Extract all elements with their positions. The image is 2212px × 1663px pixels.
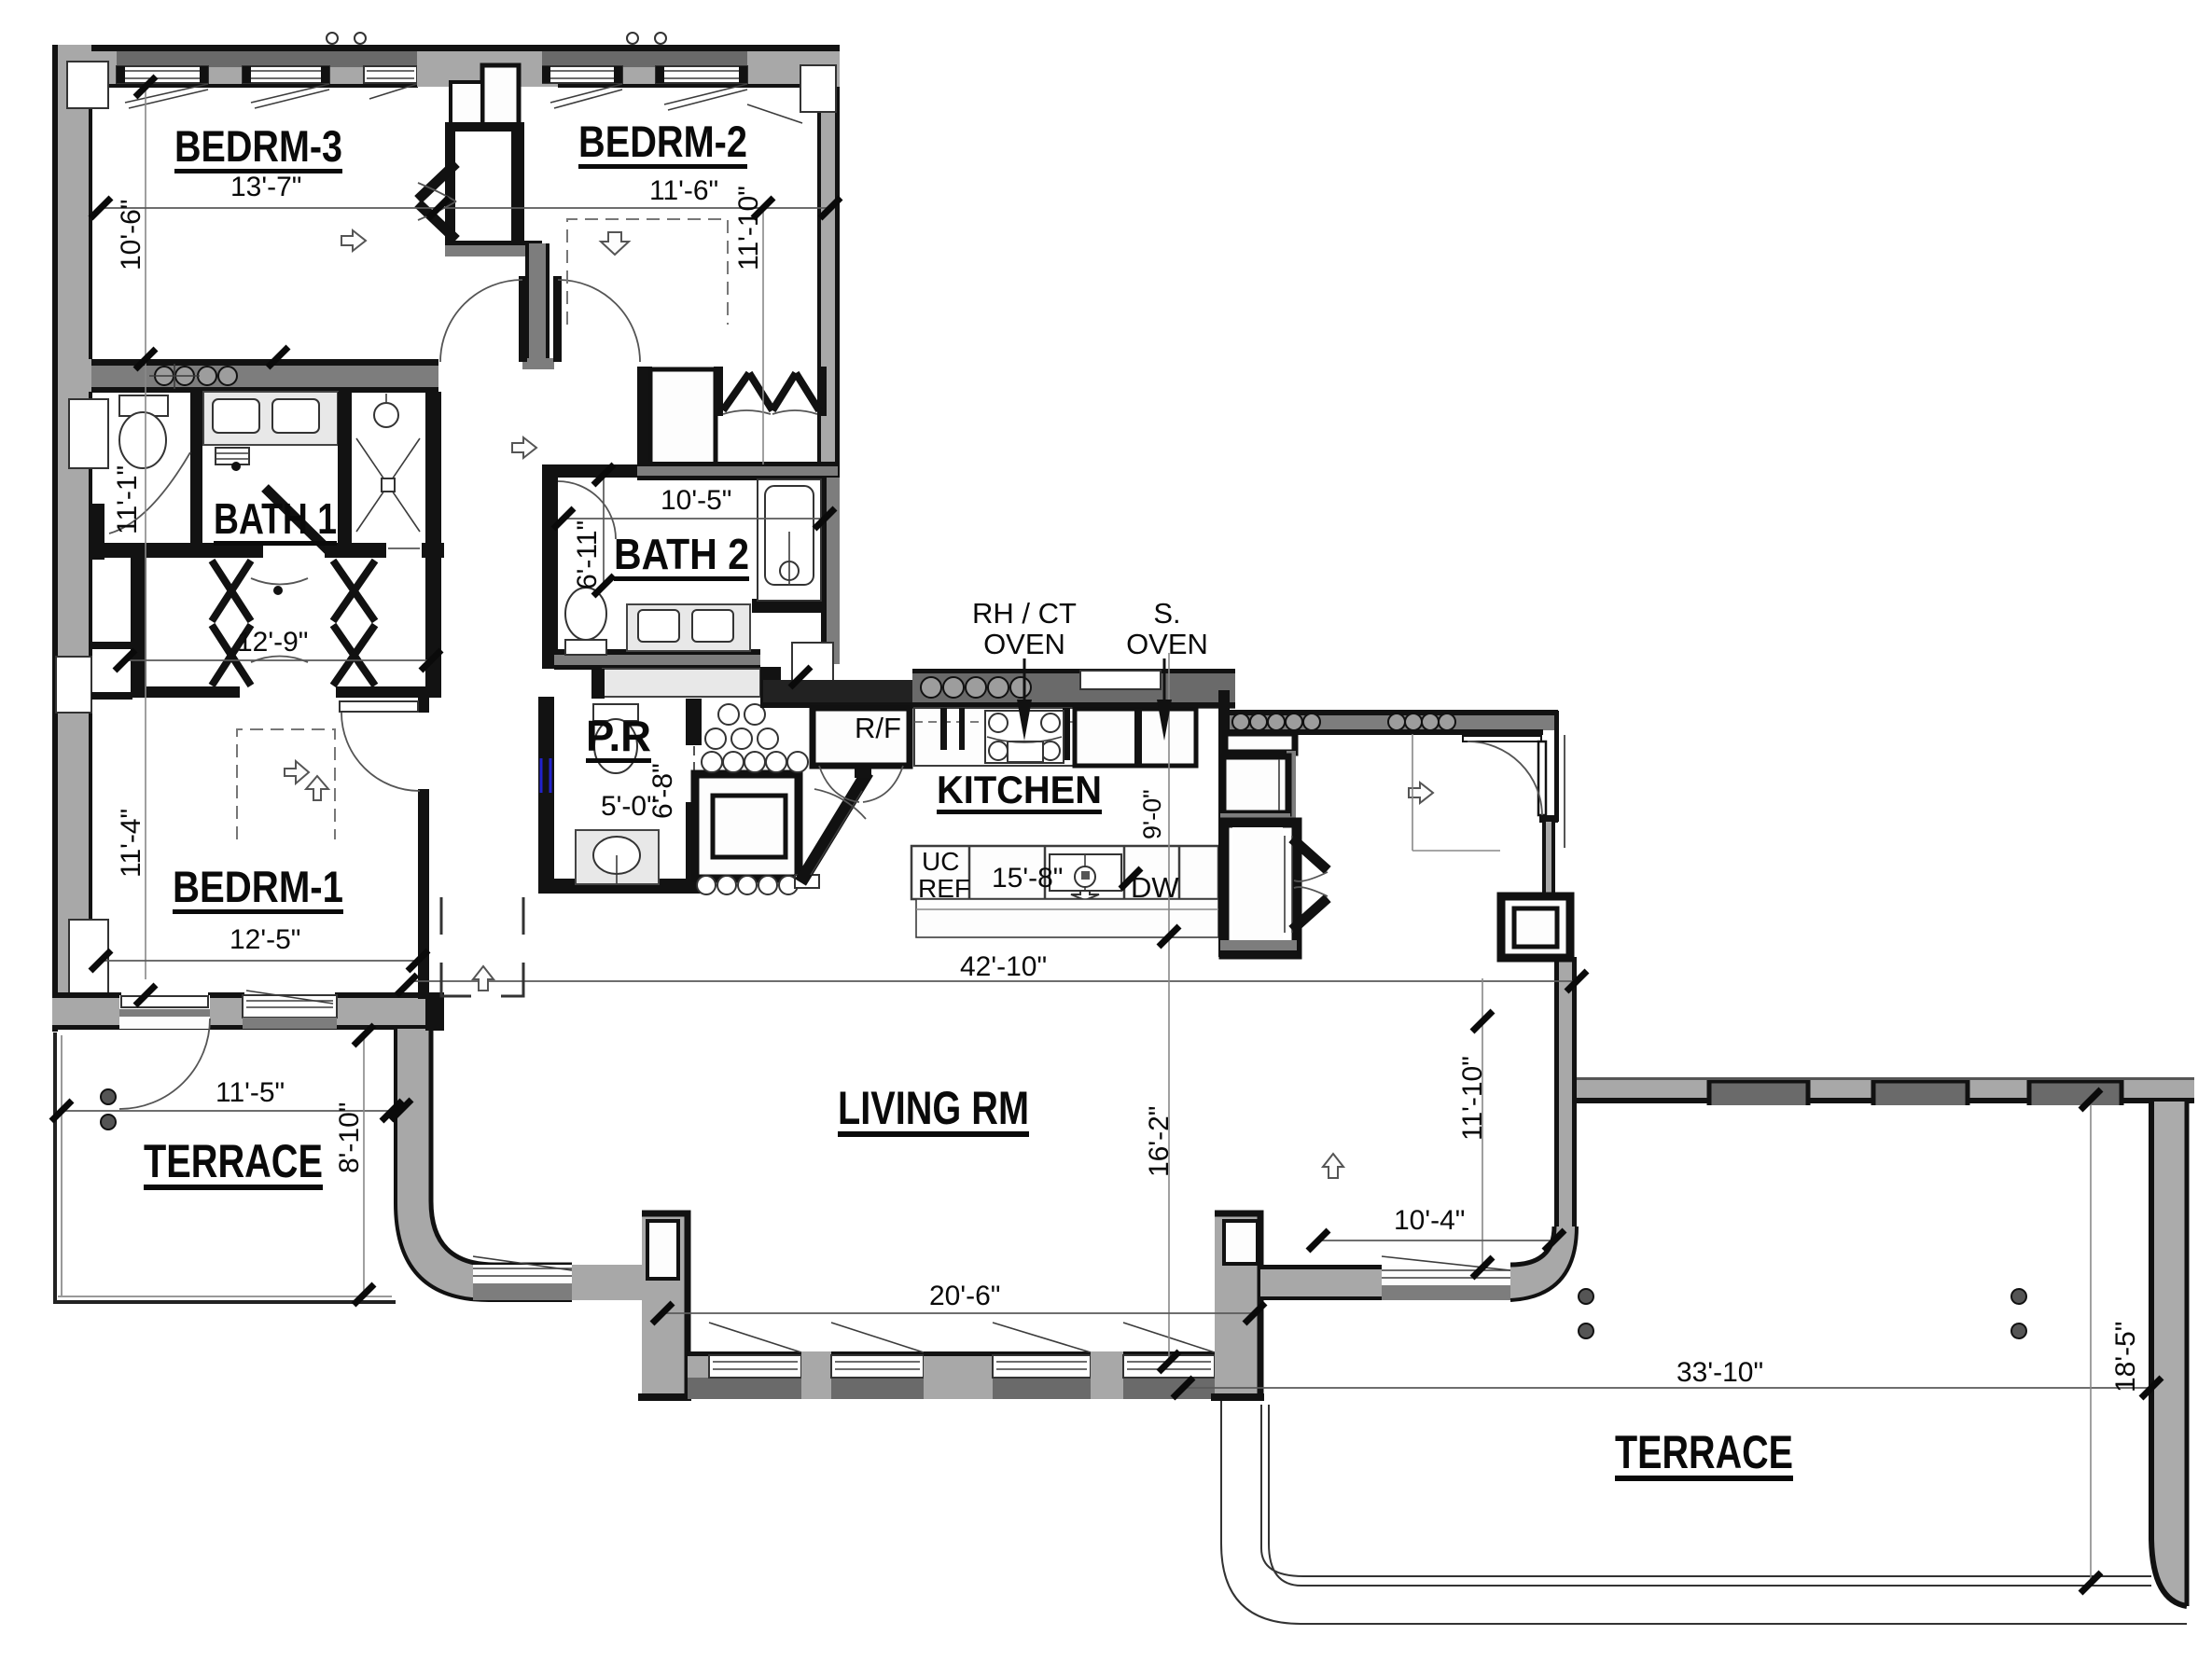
svg-text:TERRACE: TERRACE xyxy=(1615,1426,1793,1478)
svg-text:R/F: R/F xyxy=(855,712,901,744)
svg-text:11'-5": 11'-5" xyxy=(216,1077,285,1108)
svg-text:OVEN: OVEN xyxy=(1126,628,1208,660)
svg-text:LIVING RM: LIVING RM xyxy=(838,1082,1029,1134)
svg-text:11'-4": 11'-4" xyxy=(116,809,146,878)
svg-text:BATH 2: BATH 2 xyxy=(614,530,749,578)
svg-text:11'-1": 11'-1" xyxy=(112,465,143,534)
svg-text:BEDRM-3: BEDRM-3 xyxy=(174,121,342,171)
svg-text:12'-5": 12'-5" xyxy=(230,924,300,955)
svg-text:S.: S. xyxy=(1153,597,1180,630)
svg-text:33'-10": 33'-10" xyxy=(1676,1357,1763,1388)
svg-text:18'-5": 18'-5" xyxy=(2110,1322,2141,1393)
svg-text:6'-11": 6'-11" xyxy=(572,520,603,589)
svg-text:BEDRM-1: BEDRM-1 xyxy=(173,862,343,911)
svg-text:20'-6": 20'-6" xyxy=(929,1281,1000,1311)
svg-text:6'-8": 6'-8" xyxy=(647,763,678,819)
svg-text:16'-2": 16'-2" xyxy=(1144,1106,1175,1177)
svg-text:10'-6": 10'-6" xyxy=(116,200,146,270)
svg-text:TERRACE: TERRACE xyxy=(144,1135,323,1187)
svg-text:42'-10": 42'-10" xyxy=(960,951,1047,982)
svg-text:UC: UC xyxy=(922,847,959,876)
svg-text:P.R: P.R xyxy=(586,712,651,760)
svg-text:10'-4": 10'-4" xyxy=(1394,1205,1465,1236)
svg-text:BATH 1: BATH 1 xyxy=(214,494,337,543)
svg-text:REF: REF xyxy=(918,874,970,903)
svg-text:KITCHEN: KITCHEN xyxy=(937,768,1102,811)
svg-text:DW: DW xyxy=(1131,871,1179,904)
svg-text:10'-5": 10'-5" xyxy=(661,485,731,516)
svg-text:15'-8": 15'-8" xyxy=(992,863,1063,894)
svg-text:12'-9": 12'-9" xyxy=(237,627,308,658)
svg-text:RH / CT: RH / CT xyxy=(972,597,1077,630)
svg-text:13'-7": 13'-7" xyxy=(230,172,301,202)
svg-text:11'-10": 11'-10" xyxy=(733,186,764,270)
svg-text:11'-6": 11'-6" xyxy=(649,175,718,206)
svg-text:OVEN: OVEN xyxy=(983,628,1065,660)
svg-text:11'-10": 11'-10" xyxy=(1457,1056,1488,1141)
svg-text:9'-0": 9'-0" xyxy=(1138,789,1166,839)
svg-text:8'-10": 8'-10" xyxy=(334,1102,365,1173)
svg-text:BEDRM-2: BEDRM-2 xyxy=(578,117,747,166)
